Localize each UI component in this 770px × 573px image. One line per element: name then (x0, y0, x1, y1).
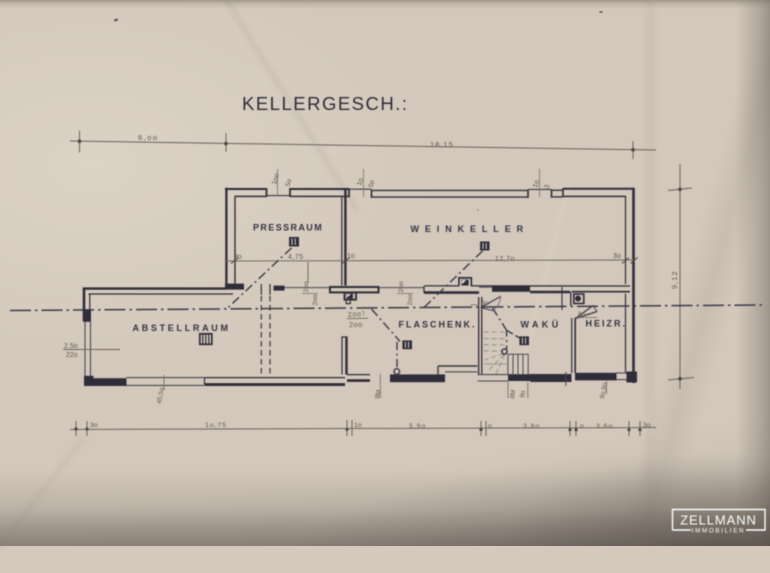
svg-text:22o: 22o (66, 352, 78, 359)
svg-text:18,15: 18,15 (430, 140, 454, 149)
svg-text:6,oo: 6,oo (138, 133, 159, 142)
svg-text:45,5o: 45,5o (156, 387, 166, 405)
svg-text:3o: 3o (234, 254, 242, 261)
svg-text:2oo: 2oo (407, 294, 414, 306)
svg-text:2oo: 2oo (349, 320, 363, 329)
svg-text:3,6o: 3,6o (596, 423, 613, 430)
svg-text:8o: 8o (578, 311, 585, 318)
svg-text:5o: 5o (368, 179, 377, 188)
svg-text:3,8o: 3,8o (523, 423, 540, 430)
svg-text:IMMOBILIEN: IMMOBILIEN (692, 527, 745, 534)
svg-text:2oo˥: 2oo˥ (348, 309, 366, 319)
svg-text:1oo: 1oo (271, 173, 281, 186)
svg-text:8M: 8M (509, 389, 517, 399)
svg-text:3o: 3o (643, 422, 651, 429)
svg-text:9o,9o: 9o,9o (599, 382, 609, 400)
svg-text:1o: 1o (354, 422, 362, 429)
svg-text:HEIZR.: HEIZR. (586, 319, 628, 329)
svg-text:8o: 8o (482, 300, 489, 307)
svg-text:3o: 3o (90, 422, 98, 429)
svg-text:1o: 1o (347, 253, 355, 260)
svg-text:5,9o: 5,9o (409, 423, 426, 430)
svg-text:WEINKELLER: WEINKELLER (411, 224, 530, 234)
svg-text:2oo: 2oo (312, 294, 319, 306)
svg-text:3: 3 (544, 184, 552, 190)
svg-text:ZELLMANN: ZELLMANN (680, 513, 757, 528)
svg-text:9o: 9o (519, 390, 527, 399)
svg-text:2oo: 2oo (398, 281, 405, 293)
svg-text:9,12: 9,12 (670, 270, 679, 289)
svg-text:PRESSRAUM: PRESSRAUM (253, 223, 323, 233)
svg-text:2oo: 2oo (303, 281, 310, 293)
svg-text:1o,75: 1o,75 (205, 422, 227, 429)
svg-text:o: o (488, 423, 492, 430)
svg-text:5o: 5o (285, 178, 294, 187)
svg-text:8M: 8M (374, 389, 382, 399)
svg-text:2.5o: 2.5o (64, 343, 78, 350)
svg-text:FLASCHENK.: FLASCHENK. (399, 320, 477, 330)
svg-text:WAKÜ: WAKÜ (521, 320, 562, 330)
svg-text:12,7o: 12,7o (495, 256, 515, 263)
svg-text:4,75: 4,75 (288, 254, 304, 261)
svg-text:ABSTELLRAUM: ABSTELLRAUM (133, 323, 231, 333)
svg-text:KELLERGESCH.:: KELLERGESCH.: (242, 93, 409, 114)
svg-text:3o: 3o (613, 253, 621, 260)
svg-text:o: o (580, 423, 584, 430)
